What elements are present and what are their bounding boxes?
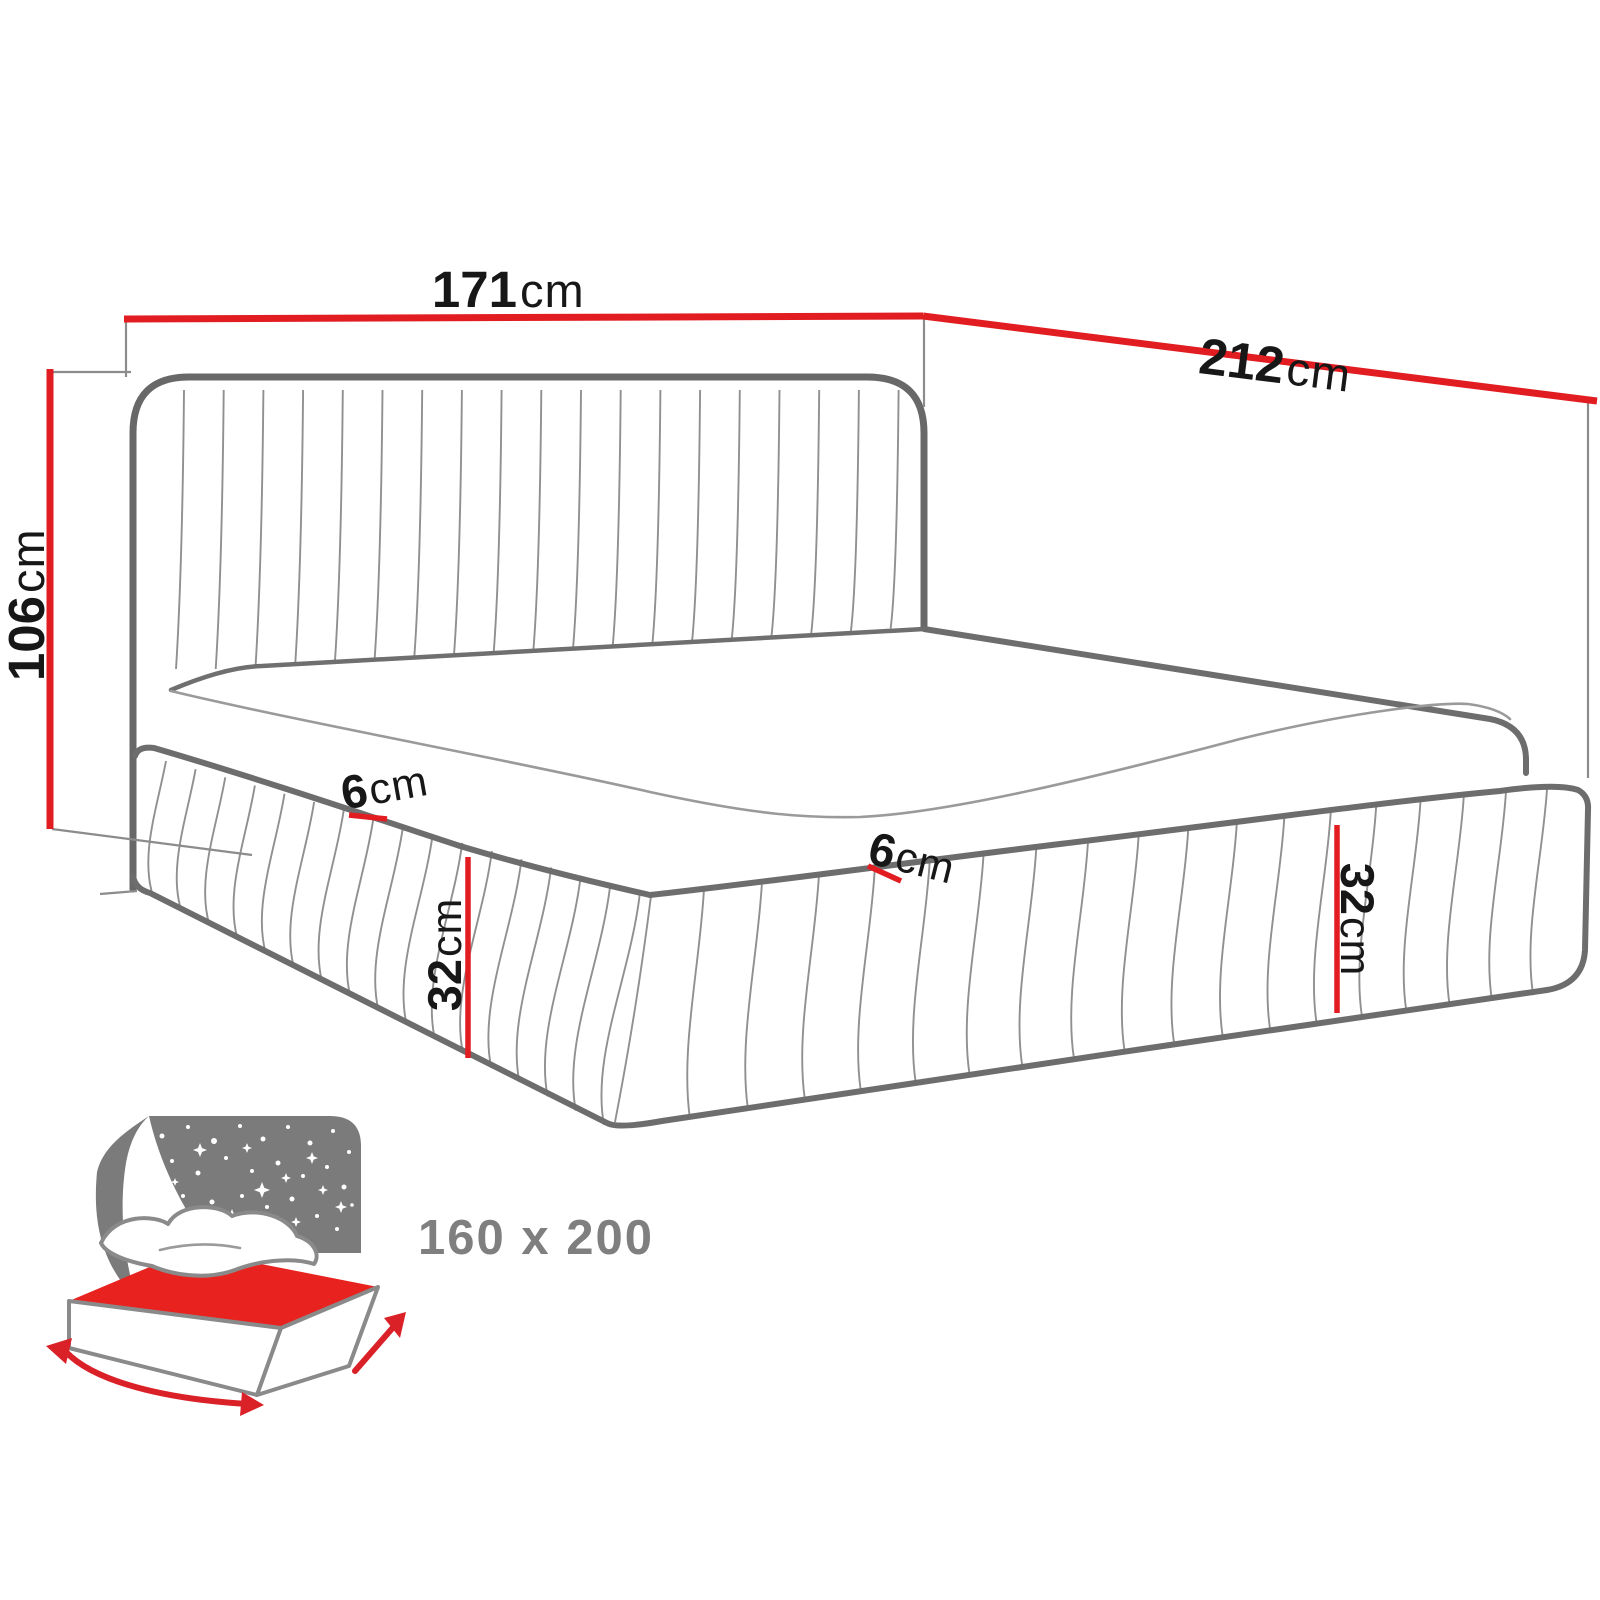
mattress-right-edge (924, 629, 1526, 773)
right-rail-channel-line (1220, 824, 1237, 1037)
headboard-channel-line (573, 390, 581, 649)
star-icon (290, 1197, 295, 1202)
right-rail-channel-line (1267, 818, 1284, 1030)
left-rail-channel-line (177, 769, 196, 910)
star-icon (250, 1169, 254, 1173)
star-icon (331, 1129, 335, 1133)
headboard-channel-line (613, 390, 621, 646)
left-rail-channel-line (573, 884, 610, 1111)
frame-height-left-unit: cm (423, 898, 471, 957)
star-icon (335, 1227, 339, 1231)
length-value: 212 (1196, 327, 1288, 394)
headboard-channel-line (851, 390, 859, 631)
frame-height-right-label: 32 cm (1331, 863, 1384, 977)
star-icon (261, 1137, 266, 1142)
right-rail-channel-line (1171, 830, 1188, 1044)
headboard-channel-line (692, 390, 700, 641)
frame-gap-left-unit: cm (365, 757, 432, 815)
right-rail-channel-line (1314, 812, 1331, 1023)
right-rail-channel-line (1447, 796, 1464, 1006)
right-rail-channel-line (1404, 802, 1421, 1012)
length-label: 212 cm (1196, 327, 1355, 403)
mattress-back-edge (171, 629, 924, 690)
left-rail-channel-line (233, 786, 254, 939)
headboard (133, 377, 924, 889)
headboard-channel-line (414, 390, 422, 659)
headboard-channel-line (811, 390, 819, 634)
star-icon (301, 1174, 305, 1178)
headboard-channel-line (772, 390, 780, 636)
star-icon (347, 1150, 351, 1154)
frame-height-right-unit: cm (1331, 917, 1379, 976)
right-rail-channel-line (913, 861, 930, 1082)
width-unit: cm (520, 264, 585, 317)
left-rail-channel-lines (148, 761, 640, 1125)
right-rail-channel-line (745, 881, 762, 1109)
star-icon (350, 1203, 354, 1207)
headboard-channel-line (255, 390, 263, 668)
right-rail-channel-line (1489, 791, 1506, 1000)
height-label: 106 cm (0, 528, 55, 681)
headboard-channel-line (891, 390, 899, 629)
headboard-channel-line (295, 390, 303, 666)
right-rail-channel-line (1530, 786, 1547, 995)
frame-gap-left-label: 6 cm (337, 752, 432, 819)
right-rail-channel-line (687, 888, 704, 1118)
star-icon (170, 1159, 174, 1163)
height-unit: cm (1, 528, 54, 593)
frame-gap-right-unit: cm (891, 833, 960, 894)
left-rail-channel-line (545, 876, 581, 1097)
mattress-size-label: 160 x 200 (418, 1211, 654, 1265)
right-rail-channel-line (967, 855, 984, 1075)
right-rail-channel-line (1019, 848, 1036, 1066)
headboard-channel-lines (176, 390, 899, 669)
headboard-outline (133, 377, 924, 889)
diagram-canvas: 171 cm 212 cm 106 cm 6 cm 6 cm 32 cm 32 … (0, 0, 1600, 1600)
star-icon (342, 1185, 347, 1190)
star-icon (151, 1190, 155, 1194)
length-unit: cm (1284, 341, 1355, 402)
width-label: 171 cm (432, 261, 585, 318)
headboard-channel-line (216, 390, 224, 669)
left-rail-channel-line (290, 802, 314, 968)
right-rail-channel-line (858, 868, 875, 1091)
headboard-channel-line (732, 390, 740, 639)
headboard-channel-line (454, 390, 462, 656)
star-icon (308, 1141, 313, 1146)
frame-height-left-label: 32 cm (418, 898, 471, 1012)
star-icon (224, 1156, 228, 1160)
headboard-channel-line (176, 390, 184, 669)
right-rail-channel-line (802, 875, 819, 1101)
base-right-edge (1547, 810, 1588, 990)
star-icon (210, 1200, 215, 1205)
star-icon (196, 1171, 201, 1176)
left-rail-channel-line (347, 818, 374, 996)
left-rail-channel-line (262, 794, 285, 954)
extension-line-left-bottom (52, 829, 252, 855)
right-rail-channel-line (1122, 836, 1139, 1051)
star-icon (325, 1165, 329, 1169)
star-icon (145, 1165, 155, 1175)
height-value: 106 (0, 596, 55, 681)
floor-line (100, 891, 137, 894)
right-rail-channel-line (1071, 842, 1088, 1058)
base-top-edge-right (650, 787, 1588, 895)
star-icon (160, 1134, 165, 1139)
icon-width-arrowhead-left (46, 1338, 72, 1364)
headboard-channel-line (533, 390, 541, 651)
star-icon (238, 1124, 242, 1128)
star-icon (315, 1214, 319, 1218)
star-icon (286, 1125, 290, 1129)
left-rail-channel-line (148, 761, 166, 896)
star-icon (211, 1138, 217, 1144)
frame-height-left-value: 32 (418, 959, 471, 1011)
star-icon (186, 1125, 190, 1129)
headboard-channel-line (652, 390, 660, 644)
star-icon (181, 1194, 185, 1198)
star-icon (158, 1208, 162, 1212)
star-icon (276, 1161, 281, 1166)
headboard-channel-line (494, 390, 502, 654)
width-value: 171 (432, 261, 517, 318)
frame-height-right-value: 32 (1331, 863, 1384, 915)
frame-gap-right-label: 6 cm (863, 821, 961, 894)
left-rail-channel-line (375, 827, 403, 1011)
storage-bed-icon (46, 1116, 406, 1416)
star-icon (265, 1205, 269, 1209)
star-icon (240, 1194, 244, 1198)
headboard-channel-line (375, 390, 383, 661)
bed-dimension-diagram: 171 cm 212 cm 106 cm 6 cm 6 cm 32 cm 32 … (0, 0, 1600, 1600)
headboard-channel-line (335, 390, 343, 663)
left-rail-channel-line (319, 810, 344, 982)
